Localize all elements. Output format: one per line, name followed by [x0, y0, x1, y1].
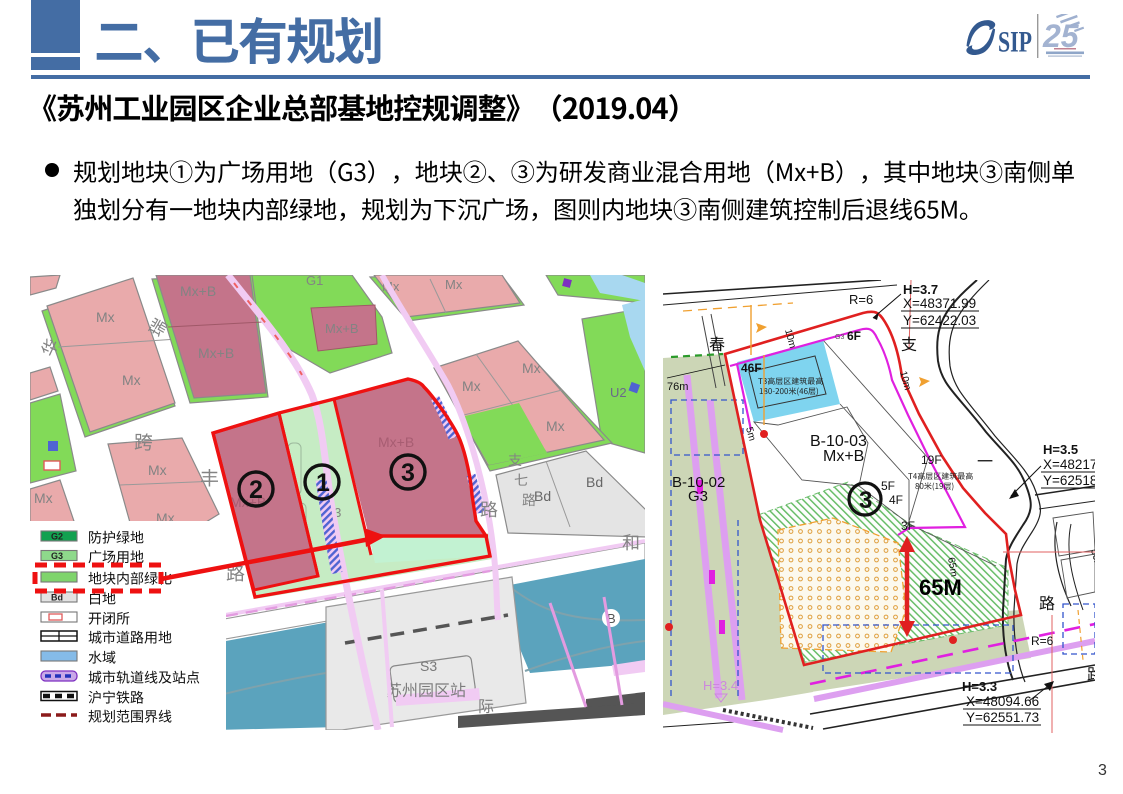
svg-text:Y=62422.03: Y=62422.03	[903, 313, 976, 328]
svg-text:H=3.3: H=3.3	[962, 679, 997, 694]
svg-text:4F: 4F	[889, 493, 903, 507]
svg-text:6F: 6F	[847, 329, 861, 343]
svg-text:X=48371.99: X=48371.99	[903, 296, 976, 311]
svg-text:H=3.5: H=3.5	[1043, 442, 1078, 457]
svg-text:3F: 3F	[901, 519, 915, 533]
svg-text:Mx: Mx	[34, 490, 53, 506]
svg-text:1: 1	[316, 469, 330, 497]
svg-text:G3: G3	[688, 488, 708, 505]
svg-text:G3: G3	[51, 551, 63, 561]
svg-text:19F: 19F	[921, 453, 942, 467]
svg-text:3: 3	[401, 459, 415, 487]
svg-text:Y=62518.: Y=62518.	[1043, 473, 1095, 488]
svg-text:5F: 5F	[881, 479, 895, 493]
svg-text:G2: G2	[51, 532, 63, 542]
svg-text:2: 2	[249, 476, 263, 504]
svg-text:Mx: Mx	[148, 462, 167, 478]
svg-text:Y=62551.73: Y=62551.73	[966, 710, 1039, 725]
svg-text:U2: U2	[610, 385, 627, 400]
svg-text:Mx: Mx	[96, 309, 115, 325]
svg-text:R=6: R=6	[849, 292, 873, 307]
svg-text:Mx: Mx	[445, 277, 463, 292]
svg-text:Bd: Bd	[534, 488, 551, 504]
svg-text:Mx+B: Mx+B	[198, 345, 234, 361]
svg-text:Bd: Bd	[586, 474, 603, 490]
svg-text:G3: G3	[835, 334, 844, 341]
svg-text:X=48094.66: X=48094.66	[966, 694, 1039, 709]
svg-text:Mx+B: Mx+B	[325, 321, 359, 336]
svg-text:G1: G1	[306, 275, 323, 288]
svg-text:Bd: Bd	[51, 593, 63, 603]
svg-text:Mx+B: Mx+B	[378, 434, 414, 450]
svg-text:Mx: Mx	[546, 418, 565, 434]
svg-text:Mx: Mx	[122, 372, 141, 388]
svg-text:SIP: SIP	[998, 26, 1032, 59]
svg-text:H=3.7: H=3.7	[903, 282, 938, 297]
svg-text:X=48217.: X=48217.	[1043, 457, 1095, 472]
svg-text:Mx: Mx	[462, 378, 481, 394]
svg-text:Mx+B: Mx+B	[823, 448, 864, 465]
svg-text:65M: 65M	[919, 575, 962, 600]
svg-text:H=3.4: H=3.4	[703, 678, 738, 693]
svg-text:Mx+B: Mx+B	[180, 283, 216, 299]
svg-text:Mx: Mx	[522, 360, 541, 376]
svg-text:76m: 76m	[667, 381, 688, 393]
svg-text:S3: S3	[420, 658, 437, 674]
svg-text:3: 3	[859, 487, 872, 514]
svg-text:R=6: R=6	[1031, 634, 1054, 648]
